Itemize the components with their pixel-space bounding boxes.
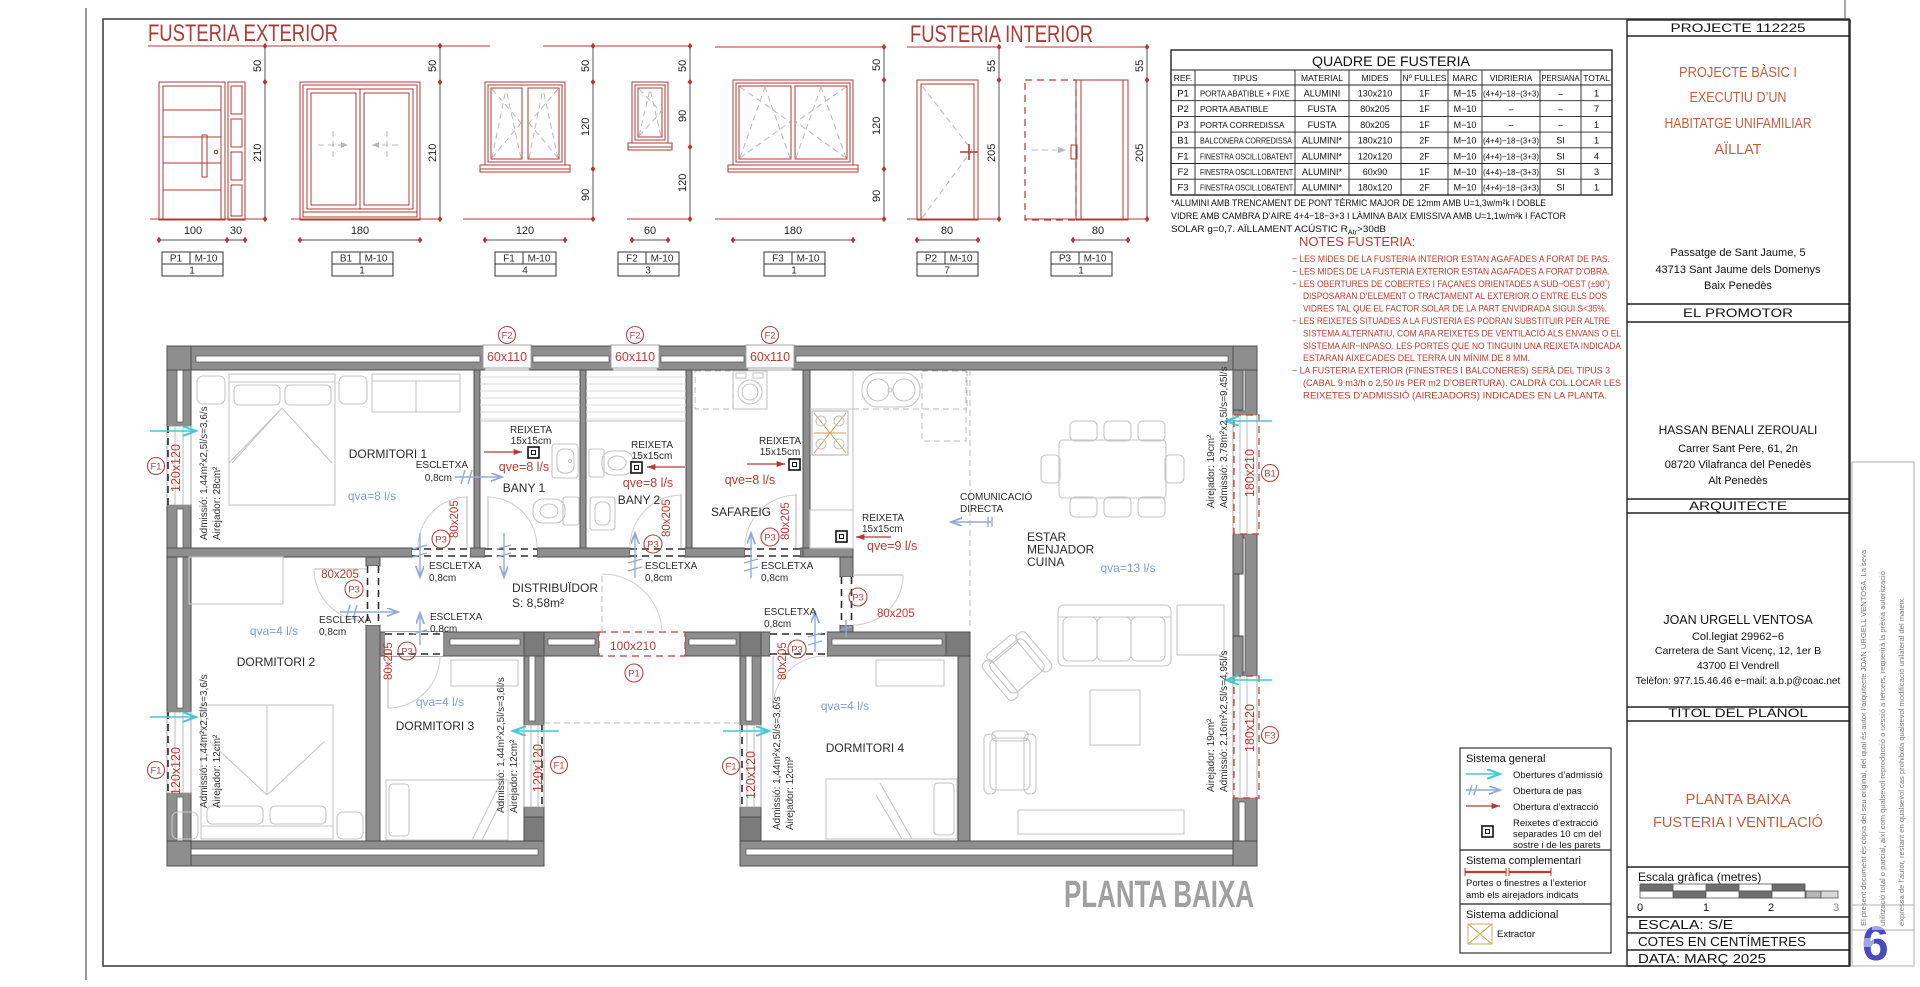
svg-text:1: 1 xyxy=(1594,136,1599,147)
svg-text:utilització total o parcial, a: utilització total o parcial, així com qu… xyxy=(1878,571,1887,926)
svg-text:ESTARAN AIXECADES DEL TERRA UN: ESTARAN AIXECADES DEL TERRA UN MÍNIM DE … xyxy=(1303,353,1530,363)
svg-text:REIXETES D’ADMISSIÓ (AIREJADOR: REIXETES D’ADMISSIÓ (AIREJADORS) INDICAD… xyxy=(1303,390,1607,400)
svg-text:0,8cm: 0,8cm xyxy=(645,573,672,584)
svg-text:PORTA CORREDISSA: PORTA CORREDISSA xyxy=(1200,120,1285,130)
svg-text:PLANTA BAIXA: PLANTA BAIXA xyxy=(1064,874,1254,916)
svg-text:BANY 2: BANY 2 xyxy=(618,493,661,507)
svg-text:80x205: 80x205 xyxy=(383,642,395,680)
svg-text:F1: F1 xyxy=(1177,151,1188,162)
svg-text:3: 3 xyxy=(645,266,651,277)
svg-text:qve=8 l/s: qve=8 l/s xyxy=(499,460,549,474)
svg-text:ALUMINI*: ALUMINI* xyxy=(1302,136,1343,146)
svg-text:P3: P3 xyxy=(401,647,413,658)
svg-text:Airejador: 12cm²: Airejador: 12cm² xyxy=(212,734,223,808)
svg-text:Telèfon: 977.15.46.46 e−ma: Telèfon: 977.15.46.46 e−mail: a.b.p@coac… xyxy=(1636,676,1841,687)
svg-text:ESCLETXA: ESCLETXA xyxy=(319,615,372,626)
svg-text:100x210: 100x210 xyxy=(610,639,656,653)
svg-text:Admissió: 2,16m²x2,5l/s=4,95l/: Admissió: 2,16m²x2,5l/s=4,95l/s xyxy=(1219,651,1230,792)
svg-text:Portes o finestres a l’exterio: Portes o finestres a l’exterior xyxy=(1466,878,1586,889)
svg-text:0,8cm: 0,8cm xyxy=(761,573,788,584)
svg-text:(4+4)−18−(3+3): (4+4)−18−(3+3) xyxy=(1483,184,1539,193)
svg-text:F1: F1 xyxy=(725,762,736,773)
svg-text:REF.: REF. xyxy=(1174,73,1192,83)
svg-text:90: 90 xyxy=(871,190,883,202)
svg-text:(4+4)−18−(3+3): (4+4)−18−(3+3) xyxy=(1483,168,1539,177)
svg-text:DORMITORI 1: DORMITORI 1 xyxy=(349,447,428,461)
svg-text:ESCLETXA: ESCLETXA xyxy=(416,460,469,471)
svg-text:DISTRIBUÏDOR: DISTRIBUÏDOR xyxy=(512,581,598,595)
svg-text:F2: F2 xyxy=(501,331,512,342)
svg-text:M−10: M−10 xyxy=(1454,136,1477,146)
svg-text:180x120: 180x120 xyxy=(1243,704,1257,752)
svg-text:80x205: 80x205 xyxy=(1360,120,1390,130)
svg-text:1F: 1F xyxy=(1419,167,1430,177)
svg-text:(4+4)−18−(3+3): (4+4)−18−(3+3) xyxy=(1483,137,1539,146)
svg-text:M-10: M-10 xyxy=(797,254,820,265)
svg-text:80x205: 80x205 xyxy=(780,502,792,540)
svg-text:Airejador: 12cm²: Airejador: 12cm² xyxy=(785,756,796,830)
svg-text:EL PROMOTOR: EL PROMOTOR xyxy=(1683,306,1793,320)
svg-text:180: 180 xyxy=(784,225,802,237)
svg-text:P3: P3 xyxy=(647,540,659,551)
svg-text:Baix Penedès: Baix Penedès xyxy=(1704,280,1772,292)
svg-text:ESCLETXA: ESCLETXA xyxy=(429,561,482,572)
svg-text:DATA: MARÇ 2025: DATA: MARÇ 2025 xyxy=(1638,951,1766,966)
svg-text:separades 10 cm del: separades 10 cm del xyxy=(1513,829,1601,840)
svg-text:TÍTOL DEL PLÀNOL: TÍTOL DEL PLÀNOL xyxy=(1668,705,1808,720)
svg-text:60x110: 60x110 xyxy=(750,350,790,364)
svg-text:0,8cm: 0,8cm xyxy=(764,619,791,630)
svg-text:55: 55 xyxy=(986,60,998,72)
svg-text:amb els airejadors indicats: amb els airejadors indicats xyxy=(1466,890,1579,901)
svg-text:0,8cm: 0,8cm xyxy=(430,624,457,635)
svg-text:120x120: 120x120 xyxy=(1358,151,1393,161)
svg-text:P3: P3 xyxy=(764,533,776,544)
svg-text:43713 Sant Jaume dels Dome: 43713 Sant Jaume dels Domenys xyxy=(1655,264,1821,276)
svg-text:P3: P3 xyxy=(852,593,864,604)
svg-text:REIXETA: REIXETA xyxy=(510,425,552,436)
svg-text:120x120: 120x120 xyxy=(744,751,758,799)
svg-text:2F: 2F xyxy=(1419,136,1430,146)
svg-text:F3: F3 xyxy=(1264,731,1275,742)
svg-text:M−10: M−10 xyxy=(1454,104,1477,114)
svg-text:0: 0 xyxy=(1637,902,1643,914)
svg-text:7: 7 xyxy=(1594,104,1599,115)
svg-text:55: 55 xyxy=(1134,60,1146,72)
svg-text:15x15cm: 15x15cm xyxy=(632,451,673,462)
svg-text:REIXETA: REIXETA xyxy=(759,436,801,447)
svg-text:−: − xyxy=(1508,121,1514,132)
svg-text:F1: F1 xyxy=(503,254,515,265)
svg-text:SAFAREIG: SAFAREIG xyxy=(711,505,771,519)
svg-text:120: 120 xyxy=(580,118,592,136)
svg-text:P3: P3 xyxy=(435,535,447,546)
svg-text:PLANTA BAIXA: PLANTA BAIXA xyxy=(1686,791,1791,808)
svg-text:expressa de l’autor, restant e: expressa de l’autor, restant en qualsevo… xyxy=(1897,597,1906,926)
svg-text:qve=8 l/s: qve=8 l/s xyxy=(623,476,673,490)
svg-text:ESCLETXA: ESCLETXA xyxy=(430,612,483,623)
svg-text:El present document és còpia d: El present document és còpia del seu ori… xyxy=(1859,549,1868,926)
svg-text:VIDRES TAL QUE EL FACTOR SOLAR: VIDRES TAL QUE EL FACTOR SOLAR DE LA PAR… xyxy=(1303,304,1607,314)
svg-text:205: 205 xyxy=(1134,144,1146,162)
svg-text:1: 1 xyxy=(359,266,365,277)
svg-text:Carrer Sant Pere, 61, 2n: Carrer Sant Pere, 61, 2n xyxy=(1678,443,1798,455)
svg-text:Col.legiat 29962−6: Col.legiat 29962−6 xyxy=(1692,631,1784,643)
svg-text:1: 1 xyxy=(1078,266,1084,277)
svg-text:Admissió: 3,78m²x2,5l/s=9,45l/: Admissió: 3,78m²x2,5l/s=9,45l/s xyxy=(1219,367,1230,508)
svg-text:50: 50 xyxy=(580,60,592,72)
svg-text:0,8cm: 0,8cm xyxy=(425,473,452,484)
svg-text:QUADRE DE FUSTERIA: QUADRE DE FUSTERIA xyxy=(1312,53,1471,69)
svg-text:F1: F1 xyxy=(553,761,564,772)
svg-text:PERSIANA: PERSIANA xyxy=(1542,73,1580,83)
svg-text:50: 50 xyxy=(871,59,883,71)
svg-text:Obertures d’admissió: Obertures d’admissió xyxy=(1513,770,1603,781)
svg-text:sostre i de les parets: sostre i de les parets xyxy=(1513,840,1601,851)
svg-text:HABITATGE UNIFAMILIAR: HABITATGE UNIFAMILIAR xyxy=(1665,115,1812,132)
svg-text:120x120: 120x120 xyxy=(169,747,183,795)
svg-text:SI: SI xyxy=(1556,167,1565,177)
svg-text:FUSTERIA INTERIOR: FUSTERIA INTERIOR xyxy=(910,21,1093,48)
svg-text:F3: F3 xyxy=(772,254,784,265)
svg-text:F2: F2 xyxy=(764,331,775,342)
svg-text:M-10: M-10 xyxy=(195,254,218,265)
svg-text:180: 180 xyxy=(351,225,369,237)
svg-text:COTES EN CENTÍMETRES: COTES EN CENTÍMETRES xyxy=(1638,934,1806,949)
svg-text:F3: F3 xyxy=(1177,183,1188,194)
svg-text:ALUMINI*: ALUMINI* xyxy=(1302,151,1343,161)
svg-text:M−10: M−10 xyxy=(1454,167,1477,177)
svg-text:Sistema complementari: Sistema complementari xyxy=(1466,855,1581,867)
svg-text:PORTA ABATIBLE: PORTA ABATIBLE xyxy=(1200,104,1269,114)
svg-text:Sistema addicional: Sistema addicional xyxy=(1466,909,1558,921)
svg-text:120: 120 xyxy=(871,117,883,135)
svg-text:ALUMINI*: ALUMINI* xyxy=(1302,167,1343,177)
svg-text:M−15: M−15 xyxy=(1454,89,1477,99)
svg-text:Sistema general: Sistema general xyxy=(1466,753,1546,765)
svg-text:90: 90 xyxy=(580,189,592,201)
svg-text:3: 3 xyxy=(1594,167,1599,178)
svg-text:F1: F1 xyxy=(150,462,161,473)
svg-text:120: 120 xyxy=(677,174,689,192)
svg-text:MATERIAL: MATERIAL xyxy=(1301,73,1343,83)
svg-text:P3: P3 xyxy=(1177,120,1189,131)
svg-text:50: 50 xyxy=(427,60,439,72)
svg-text:VIDRIERIA: VIDRIERIA xyxy=(1490,73,1533,83)
svg-text:Passatge de Sant Jaume, 5: Passatge de Sant Jaume, 5 xyxy=(1670,247,1805,259)
svg-text:4: 4 xyxy=(1594,151,1599,162)
svg-text:3: 3 xyxy=(1833,902,1839,914)
svg-text:30: 30 xyxy=(230,225,242,237)
svg-text:ESCLETXA: ESCLETXA xyxy=(761,561,814,572)
svg-text:MIDES: MIDES xyxy=(1362,73,1389,83)
svg-text:DORMITORI 4: DORMITORI 4 xyxy=(826,741,905,755)
svg-text:P3: P3 xyxy=(348,585,360,596)
svg-text:1F: 1F xyxy=(1419,89,1430,99)
svg-text:180x210: 180x210 xyxy=(1243,449,1257,497)
svg-text:F2: F2 xyxy=(626,254,638,265)
svg-text:80x205: 80x205 xyxy=(449,500,461,538)
svg-text:15x15cm: 15x15cm xyxy=(862,524,903,535)
svg-text:50: 50 xyxy=(252,60,264,72)
svg-text:(4+4)−18−(3+3): (4+4)−18−(3+3) xyxy=(1483,90,1539,99)
svg-text:60x90: 60x90 xyxy=(1363,167,1388,177)
svg-text:Carretera de Sant Vicenç,: Carretera de Sant Vicenç, 12, 1er B xyxy=(1655,645,1821,657)
svg-text:130x210: 130x210 xyxy=(1358,89,1393,99)
svg-text:Airejador: 19cm²: Airejador: 19cm² xyxy=(1206,718,1217,792)
svg-text:SISTEMA AIR−INPASO. LES PORTES: SISTEMA AIR−INPASO. LES PORTES QUE NO TI… xyxy=(1303,341,1622,351)
svg-text:ARQUITECTE: ARQUITECTE xyxy=(1689,499,1787,513)
svg-text:S: 8,58m²: S: 8,58m² xyxy=(512,596,564,610)
svg-text:80x205: 80x205 xyxy=(877,608,915,620)
svg-text:Reixetes d’extracció: Reixetes d’extracció xyxy=(1513,818,1598,829)
svg-text:PROJECTE 112225: PROJECTE 112225 xyxy=(1671,21,1806,35)
svg-text:Admissió: 1,44m²x2,5l/s=3,6l/s: Admissió: 1,44m²x2,5l/s=3,6l/s xyxy=(496,677,507,813)
svg-text:BANY 1: BANY 1 xyxy=(503,481,546,495)
svg-text:Airejador: 28cm²: Airejador: 28cm² xyxy=(212,466,223,540)
svg-text:PROJECTE BÀSIC I: PROJECTE BÀSIC I xyxy=(1679,64,1797,81)
svg-text:FUSTERIA EXTERIOR: FUSTERIA EXTERIOR xyxy=(148,20,338,47)
svg-text:− LES OBERTURES DE COBERTES I: − LES OBERTURES DE COBERTES I FAÇANES OR… xyxy=(1292,279,1610,289)
svg-text:Nº FULLES: Nº FULLES xyxy=(1403,73,1447,83)
svg-text:120x120: 120x120 xyxy=(169,444,183,492)
svg-text:qva=13 l/s: qva=13 l/s xyxy=(1100,561,1155,575)
svg-text:B1: B1 xyxy=(1264,469,1276,480)
svg-text:qva=4 l/s: qva=4 l/s xyxy=(416,695,464,709)
svg-text:08720 Vilafranca del Penedè: 08720 Vilafranca del Penedès xyxy=(1665,459,1812,471)
svg-text:B1: B1 xyxy=(340,254,353,265)
svg-text:−: − xyxy=(1558,89,1564,100)
svg-text:M-10: M-10 xyxy=(651,254,674,265)
svg-text:120x120: 120x120 xyxy=(531,744,545,792)
svg-text:−: − xyxy=(1508,105,1514,116)
svg-text:80: 80 xyxy=(1092,225,1104,237)
svg-text:Admissió: 1,44m²x2,5l/s=3,6/s: Admissió: 1,44m²x2,5l/s=3,6/s xyxy=(199,674,210,808)
svg-text:TOTAL: TOTAL xyxy=(1583,73,1610,83)
svg-text:180x120: 180x120 xyxy=(1358,183,1393,193)
svg-text:DORMITORI 3: DORMITORI 3 xyxy=(396,719,475,733)
svg-text:*ALUMINI AMB TRENCAMENT DE: *ALUMINI AMB TRENCAMENT DE PONT TÈRMIC M… xyxy=(1171,198,1546,209)
svg-text:AÏLLAT: AÏLLAT xyxy=(1715,141,1762,158)
svg-text:DIRECTA: DIRECTA xyxy=(960,504,1003,515)
svg-text:− LES REIXETES SITUADES A LA: − LES REIXETES SITUADES A LA FUSTERIA ES… xyxy=(1292,316,1610,326)
svg-text:Admissió: 1,44m²x2,5l/s=3,6/s: Admissió: 1,44m²x2,5l/s=3,6/s xyxy=(772,696,783,830)
svg-text:15x15cm: 15x15cm xyxy=(760,447,801,458)
svg-text:80x205: 80x205 xyxy=(321,569,359,581)
svg-text:0,8cm: 0,8cm xyxy=(319,627,346,638)
svg-text:DISPOSARAN D’ELEMENT O TRACTAM: DISPOSARAN D’ELEMENT O TRACTAMENT AL EXT… xyxy=(1303,291,1607,301)
svg-text:80x205: 80x205 xyxy=(777,642,789,680)
svg-text:P1: P1 xyxy=(170,254,183,265)
svg-text:60: 60 xyxy=(644,225,656,237)
svg-text:qva=8 l/s: qva=8 l/s xyxy=(348,489,396,503)
svg-text:P3: P3 xyxy=(1059,254,1072,265)
svg-text:REIXETA: REIXETA xyxy=(631,440,673,451)
svg-text:qva=4 l/s: qva=4 l/s xyxy=(250,624,298,638)
svg-text:Airejador: 19cm²: Airejador: 19cm² xyxy=(1206,434,1217,508)
svg-text:− LES MIDES DE LA FUSTERIA IN: − LES MIDES DE LA FUSTERIA INTERIOR ESTA… xyxy=(1292,254,1610,264)
svg-text:15x15cm: 15x15cm xyxy=(511,436,552,447)
svg-text:HASSAN BENALI ZEROUALI: HASSAN BENALI ZEROUALI xyxy=(1659,423,1818,437)
svg-text:100: 100 xyxy=(184,225,202,237)
svg-text:80: 80 xyxy=(941,225,953,237)
svg-text:FUSTERIA I VENTILACIÓ: FUSTERIA I VENTILACIÓ xyxy=(1653,814,1823,831)
svg-text:COMUNICACIÓ: COMUNICACIÓ xyxy=(960,490,1032,503)
svg-text:JOAN URGELL VENTOSA: JOAN URGELL VENTOSA xyxy=(1663,613,1813,627)
svg-text:VIDRE AMB CAMBRA D’AIRE 4+: VIDRE AMB CAMBRA D’AIRE 4+4−18−3+3 I LÀM… xyxy=(1171,211,1566,222)
svg-text:60x110: 60x110 xyxy=(615,350,655,364)
svg-text:80x205: 80x205 xyxy=(1360,104,1390,114)
svg-text:Extractor: Extractor xyxy=(1497,929,1535,940)
svg-text:(CABAL 9 m3/h o 2,50 l/s PER m: (CABAL 9 m3/h o 2,50 l/s PER m2 D’OBERTU… xyxy=(1303,378,1621,388)
svg-text:F2: F2 xyxy=(1177,167,1188,178)
svg-text:M−10: M−10 xyxy=(1454,120,1477,130)
svg-text:CUINA: CUINA xyxy=(1027,555,1064,569)
svg-text:1: 1 xyxy=(1703,902,1709,914)
svg-text:P1: P1 xyxy=(628,669,640,680)
svg-text:ALUMINI: ALUMINI xyxy=(1304,89,1341,99)
svg-text:Alt Penedès: Alt Penedès xyxy=(1708,475,1768,487)
svg-text:FINESTRA OSCIL.LOBATENT: FINESTRA OSCIL.LOBATENT xyxy=(1200,151,1293,161)
svg-text:EXECUTIU D’UN: EXECUTIU D’UN xyxy=(1690,89,1787,106)
svg-text:− LES MIDES DE LA FUSTERIA EX: − LES MIDES DE LA FUSTERIA EXTERIOR ESTA… xyxy=(1292,266,1610,276)
svg-text:qva=4 l/s: qva=4 l/s xyxy=(821,699,869,713)
svg-text:210: 210 xyxy=(252,144,264,162)
svg-text:1: 1 xyxy=(189,266,195,277)
svg-text:P2: P2 xyxy=(1177,104,1189,115)
svg-text:43700 El Vendrell: 43700 El Vendrell xyxy=(1697,660,1779,672)
svg-text:1: 1 xyxy=(791,266,797,277)
svg-text:80x205: 80x205 xyxy=(661,499,673,537)
svg-text:FUSTA: FUSTA xyxy=(1308,120,1337,130)
svg-text:90: 90 xyxy=(677,110,689,122)
svg-text:7: 7 xyxy=(944,266,950,277)
svg-text:MARC: MARC xyxy=(1452,73,1477,83)
svg-text:B1: B1 xyxy=(1177,136,1189,147)
svg-text:1: 1 xyxy=(1594,183,1599,194)
svg-text:P2: P2 xyxy=(925,254,938,265)
svg-text:M-10: M-10 xyxy=(528,254,551,265)
svg-text:50: 50 xyxy=(677,60,689,72)
svg-text:0,8cm: 0,8cm xyxy=(429,573,456,584)
svg-text:Escala gràfica (metres): Escala gràfica (metres) xyxy=(1638,870,1761,884)
svg-text:1: 1 xyxy=(1594,120,1599,131)
svg-text:SI: SI xyxy=(1556,151,1565,161)
svg-text:FINESTRA OSCIL.LOBATENT: FINESTRA OSCIL.LOBATENT xyxy=(1200,183,1293,193)
svg-text:M−10: M−10 xyxy=(1454,183,1477,193)
svg-text:qve=9 l/s: qve=9 l/s xyxy=(867,539,917,553)
svg-text:−: − xyxy=(1558,105,1564,116)
svg-text:1F: 1F xyxy=(1419,104,1430,114)
svg-text:FINESTRA OSCIL.LOBATENT: FINESTRA OSCIL.LOBATENT xyxy=(1200,167,1293,177)
svg-text:BALCONERA CORREDISSA: BALCONERA CORREDISSA xyxy=(1200,136,1292,146)
svg-text:TIPUS: TIPUS xyxy=(1232,73,1257,83)
svg-text:M-10: M-10 xyxy=(365,254,388,265)
svg-text:ESCLETXA: ESCLETXA xyxy=(645,561,698,572)
svg-text:2F: 2F xyxy=(1419,151,1430,161)
svg-text:Admissió: 1,44m²x2,5l/s=3,6/s: Admissió: 1,44m²x2,5l/s=3,6/s xyxy=(199,406,210,540)
svg-text:SISTEMA ALTERNATIU, COM ARA RE: SISTEMA ALTERNATIU, COM ARA REIXETES DE … xyxy=(1303,328,1621,338)
svg-text:P1: P1 xyxy=(1177,89,1189,100)
svg-text:ESCALA: S/E: ESCALA: S/E xyxy=(1638,917,1733,932)
svg-text:NOTES FUSTERIA:: NOTES FUSTERIA: xyxy=(1299,234,1415,249)
svg-text:205: 205 xyxy=(986,144,998,162)
svg-text:1: 1 xyxy=(1594,89,1599,100)
svg-text:F2: F2 xyxy=(629,331,640,342)
svg-text:210: 210 xyxy=(427,144,439,162)
svg-text:F1: F1 xyxy=(150,766,161,777)
svg-text:1F: 1F xyxy=(1419,120,1430,130)
svg-text:ESCLETXA: ESCLETXA xyxy=(764,607,817,618)
svg-text:−: − xyxy=(1558,121,1564,132)
svg-text:2: 2 xyxy=(1768,902,1774,914)
svg-text:(4+4)−18−(3+3): (4+4)−18−(3+3) xyxy=(1483,152,1539,161)
svg-text:M−10: M−10 xyxy=(1454,151,1477,161)
svg-text:DORMITORI 2: DORMITORI 2 xyxy=(237,655,316,669)
svg-text:M-10: M-10 xyxy=(950,254,973,265)
svg-text:− LA FUSTERIA EXTERIOR (FINES: − LA FUSTERIA EXTERIOR (FINESTRES I BALC… xyxy=(1292,366,1610,376)
svg-text:PORTA ABATIBLE + FIXE: PORTA ABATIBLE + FIXE xyxy=(1200,89,1290,99)
svg-text:4: 4 xyxy=(522,266,528,277)
svg-text:Obertura d’extracció: Obertura d’extracció xyxy=(1513,802,1599,813)
svg-text:REIXETA: REIXETA xyxy=(862,513,904,524)
svg-text:60x110: 60x110 xyxy=(487,350,527,364)
svg-text:M-10: M-10 xyxy=(1084,254,1107,265)
svg-text:qve=8 l/s: qve=8 l/s xyxy=(725,473,775,487)
svg-text:Airejador: 12cm²: Airejador: 12cm² xyxy=(509,739,520,813)
svg-text:P3: P3 xyxy=(791,645,803,656)
svg-text:180x210: 180x210 xyxy=(1358,136,1393,146)
svg-text:FUSTA: FUSTA xyxy=(1308,104,1337,114)
svg-text:ALUMINI*: ALUMINI* xyxy=(1302,183,1343,193)
svg-text:2F: 2F xyxy=(1419,183,1430,193)
svg-text:SI: SI xyxy=(1556,183,1565,193)
svg-text:120: 120 xyxy=(516,225,534,237)
svg-text:SI: SI xyxy=(1556,136,1565,146)
svg-text:Obertura de pas: Obertura de pas xyxy=(1513,786,1582,797)
